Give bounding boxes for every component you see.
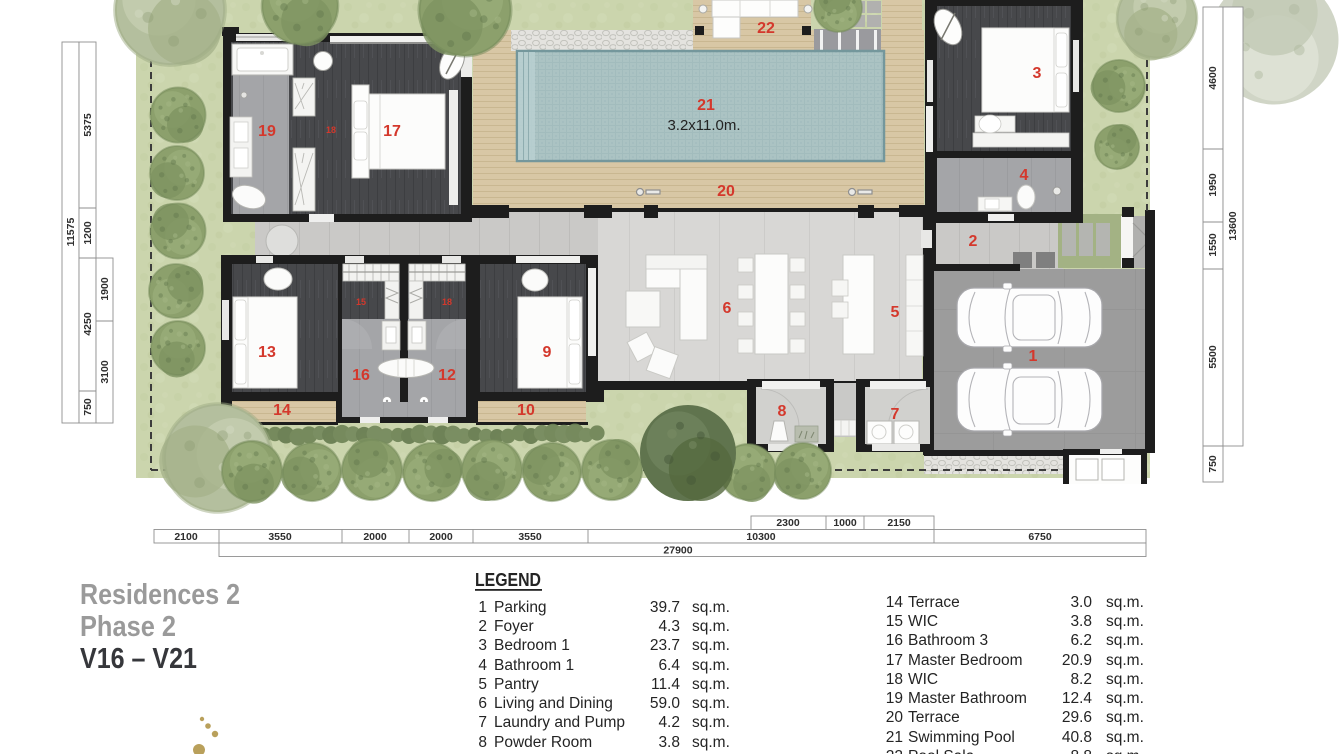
svg-text:5500: 5500 — [1207, 345, 1219, 369]
svg-text:16: 16 — [886, 632, 903, 649]
svg-text:15: 15 — [356, 297, 366, 307]
svg-text:6750: 6750 — [1028, 531, 1052, 543]
svg-text:16: 16 — [352, 367, 370, 384]
svg-text:4.3: 4.3 — [658, 618, 680, 635]
svg-text:sq.m.: sq.m. — [692, 657, 730, 674]
svg-text:39.7: 39.7 — [650, 599, 680, 616]
svg-text:Bedroom 1: Bedroom 1 — [494, 637, 570, 654]
svg-text:13600: 13600 — [1227, 211, 1239, 240]
svg-text:5375: 5375 — [82, 113, 94, 137]
svg-text:sq.m.: sq.m. — [692, 618, 730, 635]
svg-text:Laundry and Pump: Laundry and Pump — [494, 714, 625, 731]
svg-text:WIC: WIC — [908, 613, 938, 630]
svg-text:Master Bathroom: Master Bathroom — [908, 690, 1027, 707]
svg-text:1950: 1950 — [1207, 173, 1219, 197]
svg-text:3.2x11.0m.: 3.2x11.0m. — [667, 117, 740, 134]
svg-text:8.2: 8.2 — [1070, 671, 1092, 688]
svg-text:Bathroom 3: Bathroom 3 — [908, 632, 988, 649]
svg-text:2000: 2000 — [363, 531, 387, 543]
svg-text:2: 2 — [478, 618, 487, 635]
svg-text:Residences 2: Residences 2 — [80, 579, 240, 611]
svg-text:4.2: 4.2 — [658, 714, 680, 731]
svg-text:17: 17 — [886, 652, 903, 669]
svg-text:20.9: 20.9 — [1062, 652, 1092, 669]
svg-text:21: 21 — [697, 97, 715, 114]
svg-text:V16 – V21: V16 – V21 — [80, 643, 197, 675]
svg-text:59.0: 59.0 — [650, 695, 681, 712]
svg-text:LEGEND: LEGEND — [475, 570, 541, 590]
svg-text:Foyer: Foyer — [494, 618, 534, 635]
svg-text:4: 4 — [1020, 167, 1029, 184]
svg-text:1: 1 — [478, 599, 487, 616]
svg-text:7: 7 — [478, 714, 487, 731]
svg-text:sq.m.: sq.m. — [692, 676, 730, 693]
svg-text:Master Bedroom: Master Bedroom — [908, 652, 1023, 669]
svg-text:sq.m.: sq.m. — [692, 599, 730, 616]
svg-text:22: 22 — [886, 748, 903, 754]
svg-text:sq.m.: sq.m. — [1106, 594, 1144, 611]
svg-text:WIC: WIC — [908, 671, 938, 688]
svg-text:14: 14 — [886, 594, 904, 611]
svg-text:3550: 3550 — [268, 531, 292, 543]
svg-text:12: 12 — [438, 367, 456, 384]
svg-text:2: 2 — [969, 233, 978, 250]
svg-text:11.4: 11.4 — [651, 676, 680, 693]
svg-text:2100: 2100 — [174, 531, 198, 543]
svg-text:Bathroom 1: Bathroom 1 — [494, 657, 574, 674]
svg-text:22: 22 — [757, 20, 775, 37]
svg-text:sq.m.: sq.m. — [692, 637, 730, 654]
svg-text:750: 750 — [82, 398, 94, 416]
svg-text:Pool Sala: Pool Sala — [908, 748, 975, 754]
svg-text:5: 5 — [478, 676, 487, 693]
svg-text:2000: 2000 — [429, 531, 453, 543]
svg-text:21: 21 — [886, 729, 903, 746]
svg-text:1: 1 — [1029, 348, 1038, 365]
svg-text:3.8: 3.8 — [658, 734, 680, 751]
svg-text:2300: 2300 — [776, 517, 800, 529]
svg-text:3100: 3100 — [99, 360, 111, 384]
svg-text:19: 19 — [886, 690, 903, 707]
svg-text:1550: 1550 — [1207, 233, 1219, 257]
svg-text:sq.m.: sq.m. — [1106, 690, 1144, 707]
svg-text:27900: 27900 — [663, 545, 692, 557]
svg-text:18: 18 — [326, 125, 336, 135]
svg-text:Pantry: Pantry — [494, 676, 539, 693]
svg-text:23.7: 23.7 — [650, 637, 680, 654]
svg-text:8: 8 — [778, 403, 787, 420]
svg-text:8: 8 — [478, 734, 487, 751]
svg-text:750: 750 — [1207, 455, 1219, 473]
svg-text:18: 18 — [442, 297, 452, 307]
svg-text:40.8: 40.8 — [1062, 729, 1092, 746]
svg-text:3.8: 3.8 — [1070, 613, 1092, 630]
svg-text:Living and Dining: Living and Dining — [494, 695, 613, 712]
svg-text:13: 13 — [258, 344, 276, 361]
svg-text:4: 4 — [478, 657, 487, 674]
svg-text:Terrace: Terrace — [908, 594, 960, 611]
svg-text:18: 18 — [886, 671, 903, 688]
svg-text:9: 9 — [543, 344, 552, 361]
svg-text:sq.m.: sq.m. — [1106, 632, 1144, 649]
svg-text:1200: 1200 — [82, 221, 94, 245]
svg-text:20: 20 — [717, 183, 735, 200]
svg-text:3: 3 — [1033, 65, 1042, 82]
svg-text:29.6: 29.6 — [1062, 709, 1092, 726]
svg-text:sq.m.: sq.m. — [1106, 748, 1144, 754]
svg-text:6.2: 6.2 — [1070, 632, 1092, 649]
svg-text:1000: 1000 — [833, 517, 857, 529]
svg-text:4250: 4250 — [82, 312, 94, 336]
svg-text:1900: 1900 — [99, 277, 111, 301]
svg-text:Parking: Parking — [494, 599, 547, 616]
svg-text:Phase 2: Phase 2 — [80, 611, 176, 643]
svg-text:5: 5 — [891, 304, 900, 321]
svg-text:Powder Room: Powder Room — [494, 734, 592, 751]
svg-text:12.4: 12.4 — [1062, 690, 1093, 707]
svg-text:3550: 3550 — [518, 531, 542, 543]
svg-text:3: 3 — [478, 637, 487, 654]
svg-text:6: 6 — [478, 695, 487, 712]
svg-text:Terrace: Terrace — [908, 709, 960, 726]
svg-text:sq.m.: sq.m. — [1106, 729, 1144, 746]
svg-text:sq.m.: sq.m. — [1106, 652, 1144, 669]
svg-text:7: 7 — [891, 406, 900, 423]
svg-text:Swimming Pool: Swimming Pool — [908, 729, 1015, 746]
svg-text:19: 19 — [258, 123, 276, 140]
svg-text:4600: 4600 — [1207, 66, 1219, 90]
svg-text:20: 20 — [886, 709, 904, 726]
svg-text:sq.m.: sq.m. — [692, 734, 730, 751]
svg-text:11575: 11575 — [65, 218, 77, 247]
svg-text:sq.m.: sq.m. — [692, 714, 730, 731]
svg-text:10300: 10300 — [746, 531, 775, 543]
svg-text:6.4: 6.4 — [658, 657, 680, 674]
svg-text:sq.m.: sq.m. — [692, 695, 730, 712]
svg-text:10: 10 — [517, 402, 535, 419]
svg-text:17: 17 — [383, 123, 401, 140]
svg-text:6: 6 — [723, 300, 732, 317]
svg-text:sq.m.: sq.m. — [1106, 709, 1144, 726]
svg-text:sq.m.: sq.m. — [1106, 613, 1144, 630]
svg-text:8.8: 8.8 — [1070, 748, 1092, 754]
svg-text:3.0: 3.0 — [1070, 594, 1092, 611]
svg-text:2150: 2150 — [887, 517, 911, 529]
svg-text:sq.m.: sq.m. — [1106, 671, 1144, 688]
svg-text:15: 15 — [886, 613, 903, 630]
svg-text:14: 14 — [273, 402, 291, 419]
